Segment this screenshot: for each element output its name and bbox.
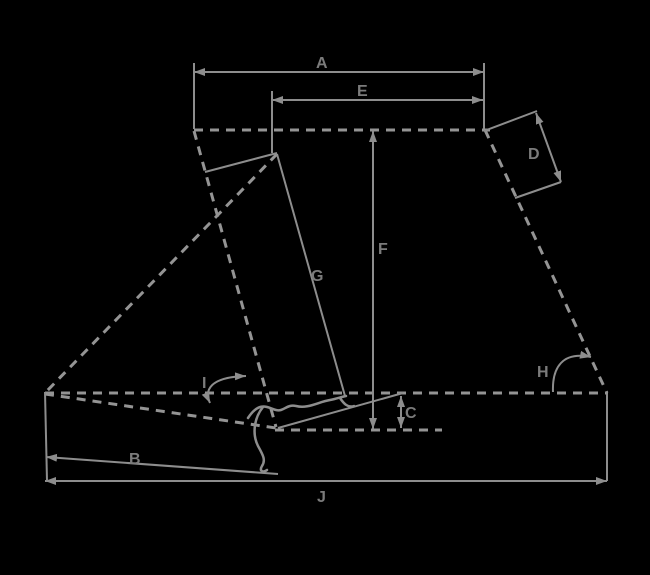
label-A: A — [316, 55, 328, 72]
chain-stay-line — [45, 394, 276, 428]
dim-D-witness-bottom — [515, 182, 561, 198]
label-F: F — [378, 241, 388, 258]
dim-B-line — [46, 457, 278, 474]
angle-I: I — [202, 375, 246, 403]
angle-H: H — [537, 356, 591, 392]
dimension-B: B — [46, 451, 278, 474]
dim-J-witness-left — [45, 392, 47, 481]
dimension-C: C — [401, 396, 417, 428]
saddle-line — [205, 153, 277, 172]
label-G: G — [311, 268, 323, 285]
head-tube-axis — [485, 130, 607, 393]
dropout-squiggle — [340, 398, 354, 407]
label-J: J — [317, 489, 326, 506]
label-H: H — [537, 364, 549, 381]
seat-tube-group: G — [205, 153, 345, 396]
head-angle-arc — [553, 356, 591, 392]
dimension-J: J — [45, 392, 607, 506]
dimension-A: A — [194, 55, 484, 129]
label-B: B — [129, 451, 141, 468]
construction-lines — [45, 130, 608, 430]
dim-D-witness-top — [484, 111, 537, 131]
label-C: C — [405, 405, 417, 422]
label-I: I — [202, 375, 206, 392]
dimension-D: D — [484, 111, 561, 198]
geometry-canvas: A E D F C G — [0, 0, 650, 575]
dimension-E: E — [272, 83, 483, 153]
seat-stay-line — [46, 154, 277, 392]
dimension-F: F — [373, 131, 388, 429]
label-E: E — [357, 83, 368, 100]
label-D: D — [528, 146, 540, 163]
bottom-bracket-sketch — [248, 393, 403, 471]
seat-post-squiggle — [255, 407, 267, 471]
seat-angle-arrow — [208, 376, 246, 403]
frame-geometry-diagram: A E D F C G — [0, 0, 650, 575]
dim-D-line — [536, 113, 561, 182]
